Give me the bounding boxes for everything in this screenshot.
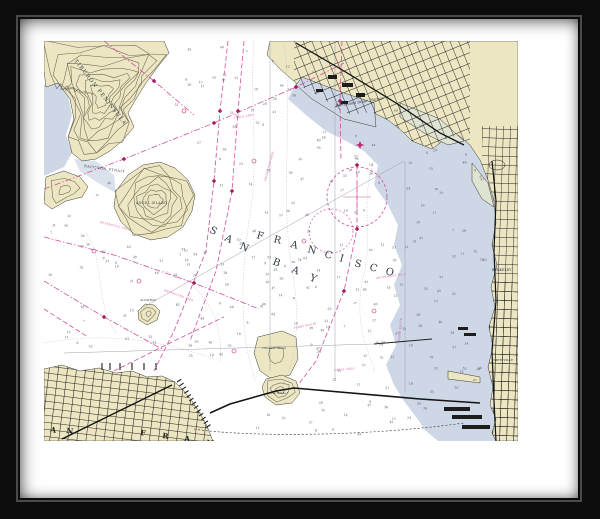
svg-text:40: 40	[374, 302, 378, 306]
svg-text:13: 13	[130, 308, 134, 312]
svg-text:24: 24	[220, 262, 224, 266]
svg-text:24: 24	[450, 331, 454, 335]
svg-text:11: 11	[432, 211, 436, 215]
svg-text:41: 41	[389, 420, 393, 424]
svg-text:18: 18	[409, 343, 413, 347]
svg-text:26: 26	[454, 386, 458, 390]
svg-text:A: A	[49, 425, 57, 435]
svg-text:12: 12	[393, 294, 397, 298]
svg-text:13: 13	[367, 329, 371, 333]
svg-text:14: 14	[278, 293, 282, 297]
svg-text:41: 41	[480, 177, 484, 182]
svg-text:31: 31	[354, 211, 358, 215]
svg-text:17: 17	[95, 193, 99, 197]
svg-text:49: 49	[219, 352, 223, 356]
svg-text:17: 17	[200, 84, 204, 88]
svg-text:46: 46	[107, 181, 111, 185]
svg-text:36: 36	[64, 223, 68, 227]
framed-print: 2331128413675418269334715622138112944173…	[0, 0, 600, 519]
svg-text:31: 31	[287, 88, 291, 92]
svg-text:N: N	[66, 426, 74, 436]
svg-text:62: 62	[125, 337, 129, 341]
svg-text:8: 8	[369, 400, 371, 404]
svg-text:7: 7	[312, 71, 314, 75]
svg-text:30: 30	[298, 157, 302, 161]
svg-text:21: 21	[230, 111, 234, 115]
svg-text:26: 26	[187, 83, 191, 87]
svg-text:47: 47	[271, 286, 275, 290]
svg-text:58: 58	[348, 168, 352, 172]
svg-text:A: A	[183, 434, 191, 441]
svg-text:28: 28	[319, 401, 323, 405]
svg-text:47: 47	[473, 378, 477, 382]
svg-text:PROHIBITED AREA: PROHIBITED AREA	[263, 151, 275, 182]
svg-text:11: 11	[461, 251, 465, 255]
svg-text:40: 40	[127, 245, 131, 249]
svg-text:52: 52	[175, 103, 179, 107]
svg-text:26: 26	[462, 228, 466, 232]
label-yerba-buena: Yerba Buena I	[268, 391, 289, 395]
svg-text:29: 29	[194, 340, 198, 344]
svg-text:33: 33	[181, 247, 185, 251]
svg-text:11: 11	[322, 130, 326, 134]
svg-text:23: 23	[105, 259, 109, 263]
svg-text:10: 10	[434, 187, 438, 191]
svg-text:A: A	[289, 264, 301, 278]
svg-text:37: 37	[372, 318, 376, 322]
svg-text:28: 28	[307, 229, 311, 233]
svg-text:31: 31	[123, 314, 127, 318]
svg-text:35: 35	[424, 287, 428, 291]
svg-text:I: I	[338, 253, 345, 265]
svg-text:41: 41	[260, 304, 264, 308]
svg-text:29: 29	[133, 255, 137, 259]
svg-text:8: 8	[293, 296, 295, 300]
svg-text:31: 31	[412, 239, 416, 243]
svg-text:44: 44	[437, 289, 441, 294]
svg-text:12: 12	[473, 249, 477, 253]
svg-text:25: 25	[203, 250, 207, 254]
svg-text:19: 19	[416, 220, 420, 224]
svg-text:14: 14	[464, 341, 468, 345]
svg-text:23: 23	[291, 201, 295, 205]
svg-text:25: 25	[434, 366, 438, 370]
svg-text:38: 38	[288, 171, 292, 175]
svg-text:S: S	[208, 225, 219, 238]
svg-text:33: 33	[234, 76, 238, 80]
svg-text:7: 7	[452, 228, 454, 232]
svg-text:58: 58	[292, 93, 296, 97]
svg-text:29: 29	[250, 108, 254, 112]
svg-text:38: 38	[222, 147, 226, 151]
svg-text:32: 32	[219, 183, 223, 187]
svg-text:23: 23	[402, 327, 406, 331]
svg-text:21: 21	[439, 275, 443, 279]
svg-text:C: C	[323, 249, 334, 262]
svg-text:12: 12	[404, 245, 408, 249]
svg-text:11: 11	[356, 382, 360, 386]
svg-text:52: 52	[255, 121, 259, 125]
svg-text:54: 54	[379, 343, 383, 347]
svg-text:32: 32	[324, 319, 328, 323]
svg-text:54: 54	[406, 187, 410, 191]
svg-text:18: 18	[185, 258, 189, 262]
svg-text:57: 57	[279, 213, 283, 217]
svg-text:40: 40	[252, 229, 256, 233]
svg-text:21: 21	[339, 243, 343, 247]
svg-text:44: 44	[357, 432, 361, 436]
svg-text:13: 13	[80, 244, 84, 248]
svg-text:21: 21	[130, 279, 134, 283]
svg-text:14: 14	[343, 413, 347, 418]
svg-text:7: 7	[50, 231, 52, 235]
svg-text:18: 18	[266, 413, 270, 417]
svg-text:33: 33	[267, 255, 271, 259]
svg-text:62: 62	[102, 250, 106, 254]
svg-text:47: 47	[300, 177, 304, 181]
svg-text:6: 6	[315, 285, 317, 289]
svg-text:19: 19	[210, 353, 214, 357]
svg-text:33: 33	[361, 363, 365, 367]
svg-text:B: B	[271, 257, 282, 270]
svg-text:7: 7	[343, 325, 345, 329]
svg-text:36: 36	[86, 242, 90, 246]
label-emeryville: EMERYVILLE	[492, 358, 513, 362]
svg-text:31: 31	[355, 287, 359, 291]
svg-text:30: 30	[187, 48, 191, 52]
svg-text:12: 12	[380, 243, 384, 247]
svg-text:8: 8	[185, 78, 187, 82]
svg-text:62: 62	[303, 256, 307, 260]
svg-text:32: 32	[67, 214, 71, 218]
svg-text:A: A	[222, 232, 235, 246]
svg-text:29: 29	[416, 313, 420, 317]
label-alcatraz: ALCATRAZ	[139, 298, 156, 302]
svg-text:25: 25	[452, 292, 456, 296]
svg-text:46: 46	[354, 156, 358, 161]
svg-text:28: 28	[263, 102, 267, 106]
svg-text:6: 6	[284, 264, 286, 268]
svg-text:C: C	[368, 262, 379, 275]
svg-text:36: 36	[384, 405, 388, 409]
svg-text:7: 7	[246, 50, 248, 54]
svg-text:38: 38	[188, 344, 192, 348]
svg-text:10: 10	[254, 87, 258, 91]
svg-text:30: 30	[48, 273, 52, 277]
svg-text:49: 49	[463, 160, 467, 164]
svg-text:15: 15	[434, 299, 438, 303]
svg-text:54: 54	[322, 135, 326, 139]
svg-text:24: 24	[407, 416, 411, 420]
svg-text:52: 52	[452, 254, 456, 258]
svg-text:40: 40	[317, 138, 321, 142]
svg-text:24: 24	[372, 143, 376, 147]
svg-text:N: N	[306, 244, 318, 257]
svg-text:26: 26	[369, 171, 373, 175]
svg-text:54: 54	[193, 252, 197, 256]
svg-text:8: 8	[332, 427, 334, 431]
svg-text:24: 24	[193, 273, 197, 277]
svg-text:41: 41	[306, 286, 310, 290]
svg-text:35: 35	[227, 344, 231, 348]
svg-text:9: 9	[474, 168, 476, 172]
svg-text:21: 21	[385, 386, 389, 390]
svg-text:52: 52	[462, 366, 466, 370]
svg-text:24: 24	[152, 340, 156, 344]
svg-text:23: 23	[282, 416, 286, 420]
svg-text:23: 23	[390, 355, 394, 359]
svg-text:25: 25	[321, 408, 325, 412]
label-treasure-island: Treasure Island	[262, 346, 286, 350]
svg-text:38: 38	[362, 287, 366, 291]
svg-text:30: 30	[279, 277, 283, 281]
svg-text:12: 12	[332, 377, 336, 381]
svg-text:14: 14	[248, 182, 252, 186]
svg-text:41: 41	[272, 110, 276, 114]
svg-text:18: 18	[80, 305, 84, 309]
svg-text:17: 17	[340, 188, 344, 193]
svg-text:17: 17	[337, 275, 341, 279]
svg-text:14: 14	[369, 163, 373, 167]
svg-text:6: 6	[465, 153, 467, 157]
svg-text:8: 8	[219, 157, 221, 161]
svg-text:19: 19	[115, 264, 119, 268]
svg-text:49: 49	[394, 109, 398, 113]
svg-text:15: 15	[363, 354, 367, 358]
svg-text:9: 9	[363, 208, 365, 212]
svg-text:54: 54	[417, 401, 421, 405]
svg-text:14: 14	[316, 268, 320, 272]
svg-text:36: 36	[329, 180, 333, 184]
svg-text:52: 52	[380, 356, 384, 360]
svg-text:19: 19	[429, 355, 433, 359]
svg-text:52: 52	[88, 344, 92, 348]
svg-text:37: 37	[309, 421, 313, 425]
svg-text:25: 25	[265, 272, 269, 276]
svg-text:35: 35	[408, 161, 412, 165]
svg-text:58: 58	[80, 234, 84, 238]
magenta-notes-layer: CABLE AREAPROHIBITED AREARESTRICTED AREA…	[100, 112, 406, 372]
svg-text:46: 46	[356, 170, 360, 174]
svg-text:25: 25	[189, 354, 193, 358]
svg-text:32: 32	[148, 335, 152, 339]
svg-text:38: 38	[418, 324, 422, 328]
svg-text:40: 40	[230, 305, 234, 309]
svg-text:9: 9	[264, 261, 266, 265]
svg-text:46: 46	[438, 320, 442, 324]
svg-text:47: 47	[364, 280, 368, 284]
svg-text:10: 10	[344, 209, 348, 213]
svg-text:7: 7	[83, 319, 85, 323]
svg-text:32: 32	[79, 265, 83, 269]
svg-text:28: 28	[223, 271, 227, 275]
svg-text:62: 62	[265, 280, 269, 284]
svg-text:44: 44	[280, 84, 284, 88]
svg-text:23: 23	[239, 162, 243, 167]
svg-text:S: S	[353, 258, 363, 270]
svg-text:26: 26	[317, 350, 321, 354]
svg-text:8: 8	[315, 429, 317, 433]
svg-text:37: 37	[439, 191, 443, 196]
svg-text:F: F	[255, 230, 265, 242]
svg-text:44: 44	[200, 317, 204, 321]
svg-text:26: 26	[273, 97, 277, 101]
svg-text:31: 31	[52, 223, 56, 227]
svg-text:9: 9	[310, 343, 312, 347]
svg-text:19: 19	[294, 321, 298, 325]
svg-text:30: 30	[291, 260, 295, 264]
svg-text:11: 11	[65, 335, 69, 339]
svg-text:37: 37	[452, 345, 456, 349]
svg-text:9: 9	[103, 256, 105, 260]
label-berkeley: BERKELEY	[492, 268, 512, 272]
svg-text:Y: Y	[307, 272, 319, 285]
svg-text:10: 10	[369, 248, 373, 252]
svg-text:49: 49	[154, 271, 158, 275]
svg-text:17: 17	[251, 255, 255, 259]
svg-text:30: 30	[476, 367, 480, 371]
svg-text:RESTRICTED AREA: RESTRICTED AREA	[164, 288, 194, 302]
svg-text:9: 9	[355, 134, 357, 138]
svg-text:8: 8	[262, 123, 264, 127]
svg-text:58: 58	[225, 283, 229, 287]
svg-text:44: 44	[271, 312, 275, 316]
svg-text:57: 57	[392, 246, 396, 250]
svg-text:35: 35	[430, 390, 434, 394]
svg-text:10: 10	[325, 325, 329, 329]
svg-text:15: 15	[66, 330, 70, 334]
svg-text:12: 12	[286, 64, 290, 68]
svg-text:12: 12	[223, 73, 227, 77]
svg-text:15: 15	[399, 283, 403, 287]
svg-text:35: 35	[212, 76, 216, 80]
svg-text:49: 49	[320, 328, 324, 332]
svg-text:58: 58	[480, 258, 484, 262]
svg-text:A: A	[288, 239, 300, 252]
svg-text:6: 6	[219, 301, 221, 305]
svg-text:36: 36	[208, 340, 212, 344]
svg-text:41: 41	[265, 211, 269, 215]
svg-text:54: 54	[297, 258, 301, 263]
svg-text:46: 46	[305, 213, 309, 217]
svg-text:29: 29	[433, 148, 437, 152]
svg-text:13: 13	[460, 370, 464, 374]
svg-text:41: 41	[419, 236, 423, 240]
svg-text:7: 7	[179, 253, 181, 257]
svg-text:44: 44	[317, 146, 321, 150]
svg-text:31: 31	[159, 259, 163, 263]
svg-text:47: 47	[367, 403, 371, 407]
svg-text:62: 62	[327, 307, 331, 311]
svg-text:15: 15	[186, 262, 190, 266]
svg-text:26: 26	[286, 209, 290, 213]
svg-text:15: 15	[429, 167, 433, 171]
svg-text:18: 18	[237, 332, 241, 336]
label-angel-island: ANGEL ISLAND	[135, 201, 167, 205]
svg-text:6: 6	[174, 274, 176, 278]
svg-text:58: 58	[232, 125, 236, 129]
nautical-chart: 2331128413675418269334715622138112944173…	[44, 41, 518, 441]
svg-text:6: 6	[426, 151, 428, 155]
svg-text:29: 29	[392, 258, 396, 262]
svg-text:R: R	[272, 234, 283, 247]
svg-text:11: 11	[256, 426, 260, 430]
svg-text:CABLE AREA: CABLE AREA	[334, 366, 355, 372]
svg-text:8: 8	[76, 341, 78, 345]
svg-text:38: 38	[423, 406, 427, 410]
svg-text:18: 18	[386, 286, 390, 290]
svg-text:40: 40	[220, 45, 224, 50]
svg-text:35: 35	[419, 124, 423, 128]
svg-text:57: 57	[197, 141, 201, 145]
svg-text:37: 37	[222, 78, 226, 82]
svg-text:13: 13	[199, 80, 203, 84]
chart-print: 2331128413675418269334715622138112944173…	[44, 41, 518, 441]
svg-text:18: 18	[409, 381, 413, 385]
svg-text:19: 19	[421, 204, 425, 208]
svg-text:N: N	[206, 438, 214, 441]
svg-text:62: 62	[176, 303, 180, 307]
svg-text:8: 8	[246, 321, 248, 325]
svg-text:33: 33	[343, 174, 347, 178]
svg-text:17: 17	[353, 301, 357, 305]
